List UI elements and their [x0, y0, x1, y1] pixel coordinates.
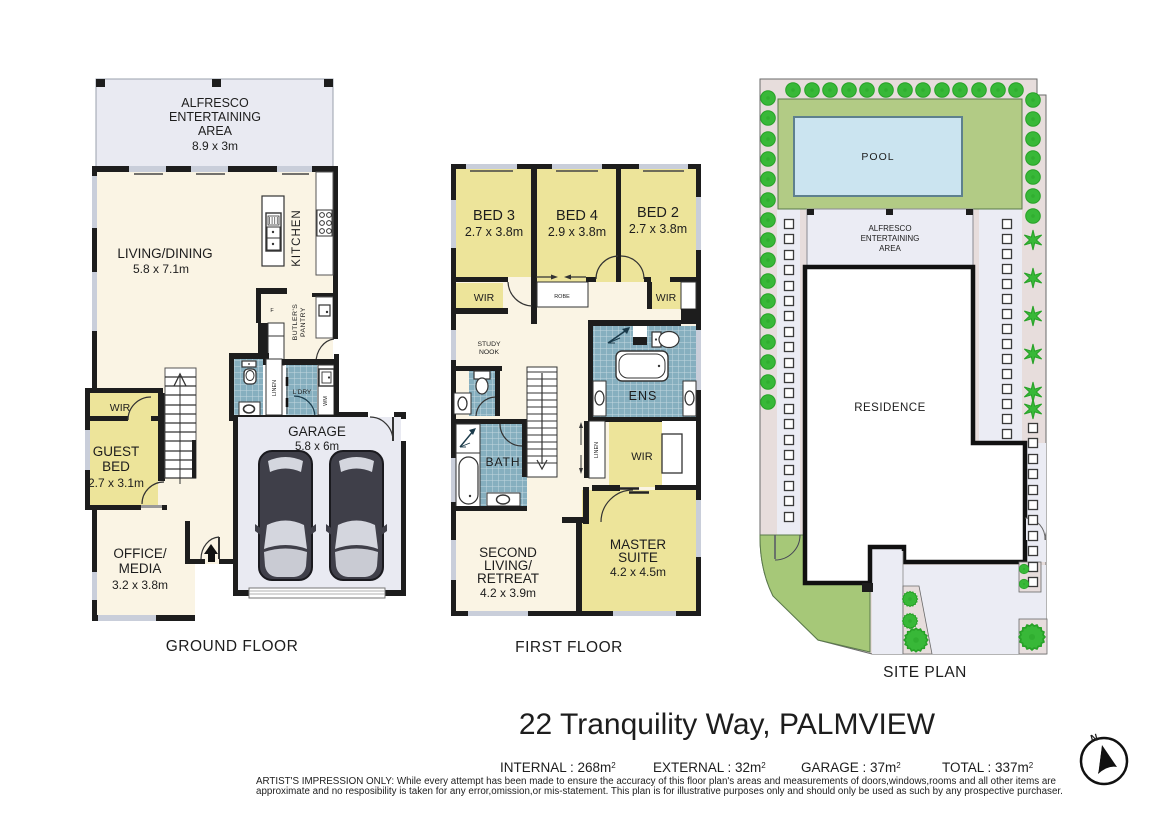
svg-text:ENTERTAINING: ENTERTAINING: [861, 234, 920, 243]
svg-text:2.7 x 3.8m: 2.7 x 3.8m: [465, 225, 523, 239]
svg-text:WIR: WIR: [474, 292, 495, 304]
svg-text:SITE PLAN: SITE PLAN: [883, 664, 967, 681]
svg-text:EXTERNAL : 32m2: EXTERNAL : 32m2: [653, 760, 766, 775]
svg-text:5.8 x 7.1m: 5.8 x 7.1m: [133, 262, 189, 276]
svg-text:L'DRY: L'DRY: [293, 389, 312, 396]
svg-text:LINEN: LINEN: [272, 380, 278, 396]
svg-text:2.7 x 3.1m: 2.7 x 3.1m: [88, 476, 144, 490]
svg-text:GARAGE : 37m2: GARAGE : 37m2: [801, 760, 901, 775]
svg-text:AREA: AREA: [879, 244, 901, 253]
svg-text:BED: BED: [102, 459, 130, 474]
svg-text:3.2 x 3.8m: 3.2 x 3.8m: [112, 578, 168, 592]
svg-text:RESIDENCE: RESIDENCE: [854, 402, 926, 414]
svg-text:approximate and no resposibili: approximate and no resposibility is take…: [256, 786, 1063, 797]
svg-text:2.9 x 3.8m: 2.9 x 3.8m: [548, 225, 606, 239]
svg-text:SUITE: SUITE: [618, 550, 658, 565]
svg-text:22 Tranquility Way, PALMVIEW: 22 Tranquility Way, PALMVIEW: [519, 708, 936, 741]
svg-text:WM: WM: [323, 396, 329, 406]
svg-text:ROBE: ROBE: [554, 294, 570, 300]
svg-text:8.9 x 3m: 8.9 x 3m: [192, 139, 238, 153]
svg-text:KITCHEN: KITCHEN: [291, 209, 303, 266]
svg-text:BATH: BATH: [485, 455, 520, 469]
svg-text:STUDY: STUDY: [477, 341, 501, 348]
svg-text:BED 2: BED 2: [637, 205, 679, 221]
svg-text:RETREAT: RETREAT: [477, 571, 539, 586]
svg-text:OFFICE/: OFFICE/: [113, 546, 166, 561]
svg-text:4.2 x 3.9m: 4.2 x 3.9m: [480, 586, 536, 600]
svg-text:MEDIA: MEDIA: [119, 561, 162, 576]
svg-text:GUEST: GUEST: [93, 444, 140, 459]
svg-text:GROUND FLOOR: GROUND FLOOR: [166, 638, 299, 655]
svg-text:ALFRESCO: ALFRESCO: [181, 96, 249, 110]
svg-text:INTERNAL : 268m2: INTERNAL : 268m2: [500, 760, 616, 775]
svg-text:2.7 x 3.8m: 2.7 x 3.8m: [629, 222, 687, 236]
svg-text:BUTLER'S: BUTLER'S: [292, 304, 299, 341]
svg-text:ENTERTAINING: ENTERTAINING: [169, 110, 261, 124]
svg-text:ALFRESCO: ALFRESCO: [868, 224, 911, 233]
svg-text:NOOK: NOOK: [479, 349, 499, 356]
svg-text:BED 3: BED 3: [473, 208, 515, 224]
svg-text:LIVING/DINING: LIVING/DINING: [117, 246, 212, 261]
svg-text:BED 4: BED 4: [556, 208, 598, 224]
svg-text:TOTAL : 337m2: TOTAL : 337m2: [942, 760, 1034, 775]
svg-text:WIR: WIR: [656, 292, 677, 304]
svg-text:WIR: WIR: [110, 402, 131, 414]
svg-text:AREA: AREA: [198, 124, 233, 138]
svg-text:PANTRY: PANTRY: [300, 307, 307, 337]
svg-text:GARAGE: GARAGE: [288, 424, 346, 439]
svg-text:WIR: WIR: [631, 451, 652, 463]
svg-text:4.2 x 4.5m: 4.2 x 4.5m: [610, 565, 666, 579]
svg-text:LINEN: LINEN: [594, 442, 600, 458]
svg-text:POOL: POOL: [861, 151, 894, 163]
svg-text:FIRST FLOOR: FIRST FLOOR: [515, 639, 623, 656]
svg-text:ENS: ENS: [629, 389, 658, 403]
